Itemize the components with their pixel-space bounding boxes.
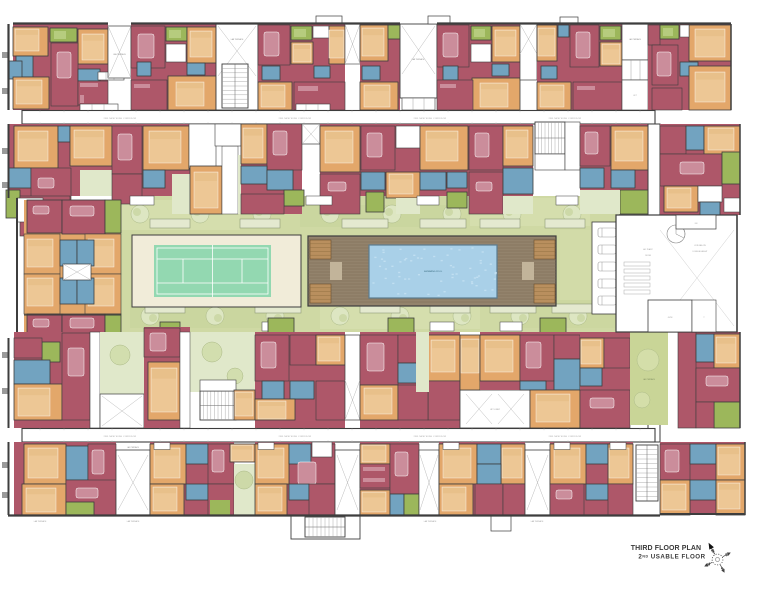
- svg-text:2ND NEW WIDE CORRIDOR: 2ND NEW WIDE CORRIDOR: [104, 436, 137, 438]
- svg-text:THIRD FLOOR PLAN: THIRD FLOOR PLAN: [631, 545, 701, 552]
- svg-text:LAN TERRACE: LAN TERRACE: [127, 446, 140, 449]
- svg-text:LIFT: LIFT: [633, 95, 636, 97]
- svg-text:DOUBLE HEIGHT: DOUBLE HEIGHT: [693, 251, 709, 253]
- svg-text:LAN TERRACE: LAN TERRACE: [629, 38, 642, 41]
- svg-text:LAN TERRACE: LAN TERRACE: [531, 520, 544, 523]
- svg-text:LAN TERRACE: LAN TERRACE: [424, 520, 437, 523]
- svg-text:LIFT LOBBY: LIFT LOBBY: [490, 409, 501, 411]
- svg-text:SWIMMING POOL: SWIMMING POOL: [424, 271, 443, 273]
- svg-text:2ND NEW WIDE CORRIDOR: 2ND NEW WIDE CORRIDOR: [279, 118, 312, 120]
- svg-text:2ND NEW WIDE CORRIDOR: 2ND NEW WIDE CORRIDOR: [549, 118, 582, 120]
- svg-text:VOID BELOW: VOID BELOW: [694, 245, 706, 247]
- svg-text:LAN TERRACE: LAN TERRACE: [231, 38, 244, 41]
- svg-text:A/C PLANT: A/C PLANT: [643, 248, 653, 251]
- svg-text:LAN TERRACE: LAN TERRACE: [643, 378, 656, 381]
- svg-text:GYM: GYM: [668, 317, 673, 319]
- svg-text:2ND NEW WIDE CORRIDOR: 2ND NEW WIDE CORRIDOR: [414, 436, 447, 438]
- svg-text:ROOM: ROOM: [645, 255, 651, 257]
- svg-text:LAN TERRACE: LAN TERRACE: [412, 58, 425, 61]
- svg-text:2ND NEW WIDE CORRIDOR: 2ND NEW WIDE CORRIDOR: [414, 118, 447, 120]
- svg-text:2ND NEW WIDE CORRIDOR: 2ND NEW WIDE CORRIDOR: [104, 118, 137, 120]
- svg-text:2ND USABLE FLOOR: 2ND USABLE FLOOR: [638, 554, 705, 561]
- svg-text:LAN TERRACE: LAN TERRACE: [127, 520, 140, 523]
- svg-text:LAN TERRACE: LAN TERRACE: [34, 520, 47, 523]
- svg-text:2ND NEW WIDE CORRIDOR: 2ND NEW WIDE CORRIDOR: [549, 436, 582, 438]
- svg-text:2ND NEW WIDE CORRIDOR: 2ND NEW WIDE CORRIDOR: [279, 436, 312, 438]
- svg-text:LAN TERRACE: LAN TERRACE: [113, 53, 126, 56]
